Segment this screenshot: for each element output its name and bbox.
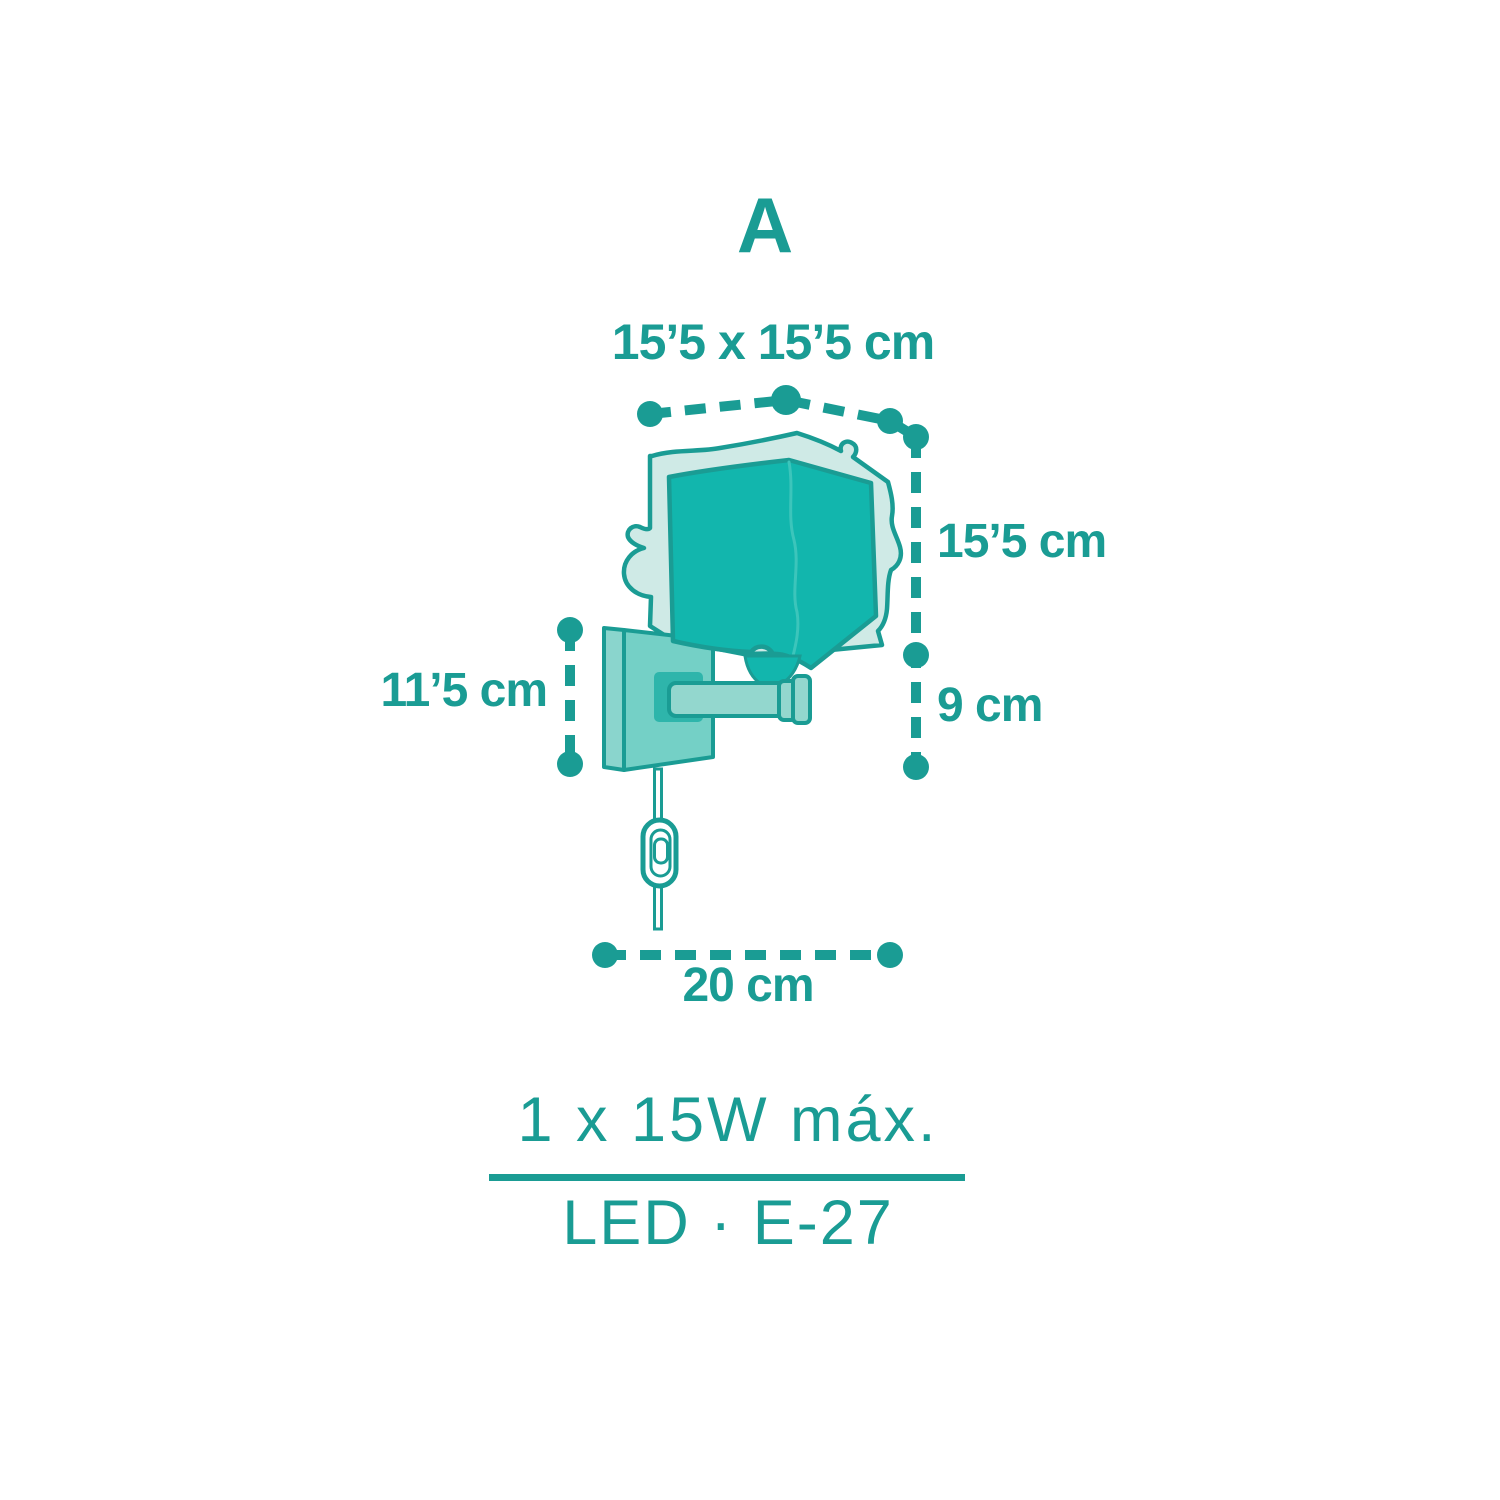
dimension-total-width: 20 cm xyxy=(682,962,813,1010)
lamp-shade-front xyxy=(669,460,876,668)
dimension-shade-height: 15’5 cm xyxy=(937,518,1106,566)
spec-socket-type: LED · E-27 xyxy=(562,1192,894,1255)
panel-label: A xyxy=(737,186,793,264)
support-arm xyxy=(669,683,791,716)
dimension-mount-height: 11’5 cm xyxy=(381,667,547,715)
dimension-bottom-clearance: 9 cm xyxy=(937,682,1042,730)
dimension-diagram: A 15’5 x 15’5 cm 15’5 cm 11’5 cm 9 cm 20… xyxy=(0,0,1500,1500)
spec-max-wattage: 1 x 15W máx. xyxy=(517,1089,938,1152)
dimension-shade-top: 15’5 x 15’5 cm xyxy=(612,317,934,367)
cord-lower xyxy=(655,883,662,929)
spec-divider-line xyxy=(489,1174,965,1181)
wall-plate-side-edge xyxy=(604,628,624,770)
cord-upper xyxy=(655,769,662,823)
arm-joint-outer xyxy=(793,676,810,723)
